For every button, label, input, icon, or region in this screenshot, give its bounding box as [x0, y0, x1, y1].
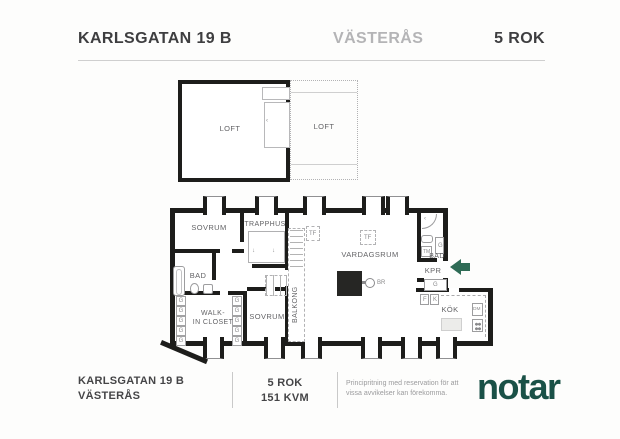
footer-address-line2: VÄSTERÅS: [78, 389, 184, 404]
fireplace-label: BR: [377, 280, 385, 286]
loft-stairs-upper: [262, 87, 290, 100]
kitchen-door-gap: [449, 288, 459, 292]
kitchen-label: KÖK: [434, 305, 466, 314]
chimney-block: [337, 271, 362, 296]
wardrobe-kpr: G: [424, 279, 447, 291]
dormer-window-bottom-2: [264, 337, 285, 359]
walkin-closet-label: WALK- IN CLOSET: [186, 309, 240, 327]
loft-right-line-top: [291, 92, 357, 93]
wardrobe-cell: G: [176, 316, 186, 326]
wall-bad-right: [212, 252, 216, 280]
footer-size: 5 ROK 151 KVM: [240, 376, 330, 406]
bedroom-bottom-label: SOVRUM: [246, 312, 288, 321]
wardrobe-cell: G: [176, 306, 186, 316]
dormer-window-bottom-1: [203, 337, 224, 359]
skylight-2: TF: [360, 230, 376, 245]
skylight-2-label: TF: [364, 235, 371, 241]
header-city: VÄSTERÅS: [333, 30, 423, 48]
header-rooms: 5 ROK: [494, 30, 545, 48]
footer-divider-2: [337, 372, 338, 408]
bedroom-top-label: SOVRUM: [180, 223, 238, 232]
footer-disclaimer: Principritning med reservation för att v…: [346, 379, 472, 398]
wardrobe-cell: G: [232, 326, 242, 336]
wardrobe-cell: G: [176, 326, 186, 336]
stairs-down-arrow-icon: ↓: [252, 248, 255, 254]
dormer-window-top-3: [303, 196, 326, 215]
notar-logo: notar: [477, 366, 560, 408]
wardrobe-kpr-label: G: [433, 282, 438, 288]
entrance-arrow-tail: [460, 263, 470, 271]
toilet-icon: [190, 283, 199, 294]
dormer-window-bottom-6: [436, 337, 457, 359]
sink-icon-left: [203, 284, 213, 294]
freezer-icon: F: [420, 294, 429, 305]
trapphus-stairs: [248, 231, 285, 263]
bathroom-left-label: BAD: [185, 271, 211, 280]
fridge-icon: K: [430, 294, 439, 305]
bathroom-right-label: BAD: [426, 252, 448, 261]
stairs-down-arrow2-icon: ↓: [272, 248, 275, 254]
skylight-1-label: TF: [309, 231, 316, 237]
wardrobe-cell: G: [232, 336, 242, 346]
wardrobe-column-left: G G G G G: [176, 296, 186, 346]
freezer-label: F: [423, 297, 427, 303]
dishwasher-icon: DM: [472, 303, 483, 316]
dormer-window-top-5: [386, 196, 409, 215]
footer-rooms: 5 ROK: [240, 376, 330, 391]
dishwasher-label: DM: [473, 307, 480, 312]
dormer-window-bottom-4: [361, 337, 382, 359]
header-address: KARLSGATAN 19 B: [78, 30, 232, 48]
header-divider: [78, 60, 545, 61]
dormer-window-top-4: [362, 196, 385, 215]
balcony-hatch: [290, 230, 303, 270]
dormer-window-top-1: [203, 196, 226, 215]
fireplace-icon: [365, 278, 375, 288]
wardrobe-cell: G: [176, 336, 186, 346]
dormer-window-top-2: [255, 196, 278, 215]
hallway-label: KPR: [420, 266, 446, 275]
floorplan-page: KARLSGATAN 19 B VÄSTERÅS 5 ROK LOFT LOFT…: [0, 0, 620, 439]
shower-spray-icon: ‹: [424, 216, 426, 222]
living-room-label: VARDAGSRUM: [320, 250, 420, 259]
skylight-1: TF: [306, 226, 320, 241]
dormer-window-bottom-5: [401, 337, 422, 359]
loft-access-stairs: [265, 275, 287, 296]
footer-address: KARLSGATAN 19 B VÄSTERÅS: [78, 374, 184, 404]
sink-icon-right: [421, 235, 433, 243]
wardrobe-cell: G: [176, 296, 186, 306]
wall-trapphus-bottom: [252, 264, 289, 268]
balcony-label: BALKONG: [291, 274, 300, 336]
wall-kpr-south-stub: [417, 278, 424, 282]
footer-address-line1: KARLSGATAN 19 B: [78, 374, 184, 389]
stairwell-label: TRAPPHUS: [241, 220, 289, 229]
wall-sovrum-bad-stub: [232, 249, 244, 253]
footer-area: 151 KVM: [240, 391, 330, 406]
wall-sovrum2-top-a: [247, 287, 267, 291]
footer-divider-1: [232, 372, 233, 408]
kitchen-island: [441, 318, 462, 331]
loft-right-line-bottom: [291, 164, 357, 165]
loft-stairs-lower: [264, 102, 290, 148]
fridge-label: K: [433, 297, 437, 303]
wardrobe-cell: G: [232, 296, 242, 306]
bathtub-icon: [173, 266, 185, 296]
loft-right-label: LOFT: [292, 122, 356, 131]
stairs-arrow-icon: ‹: [266, 118, 268, 124]
wardrobe-bath-label: G: [438, 243, 443, 249]
stove-icon: [472, 319, 483, 332]
